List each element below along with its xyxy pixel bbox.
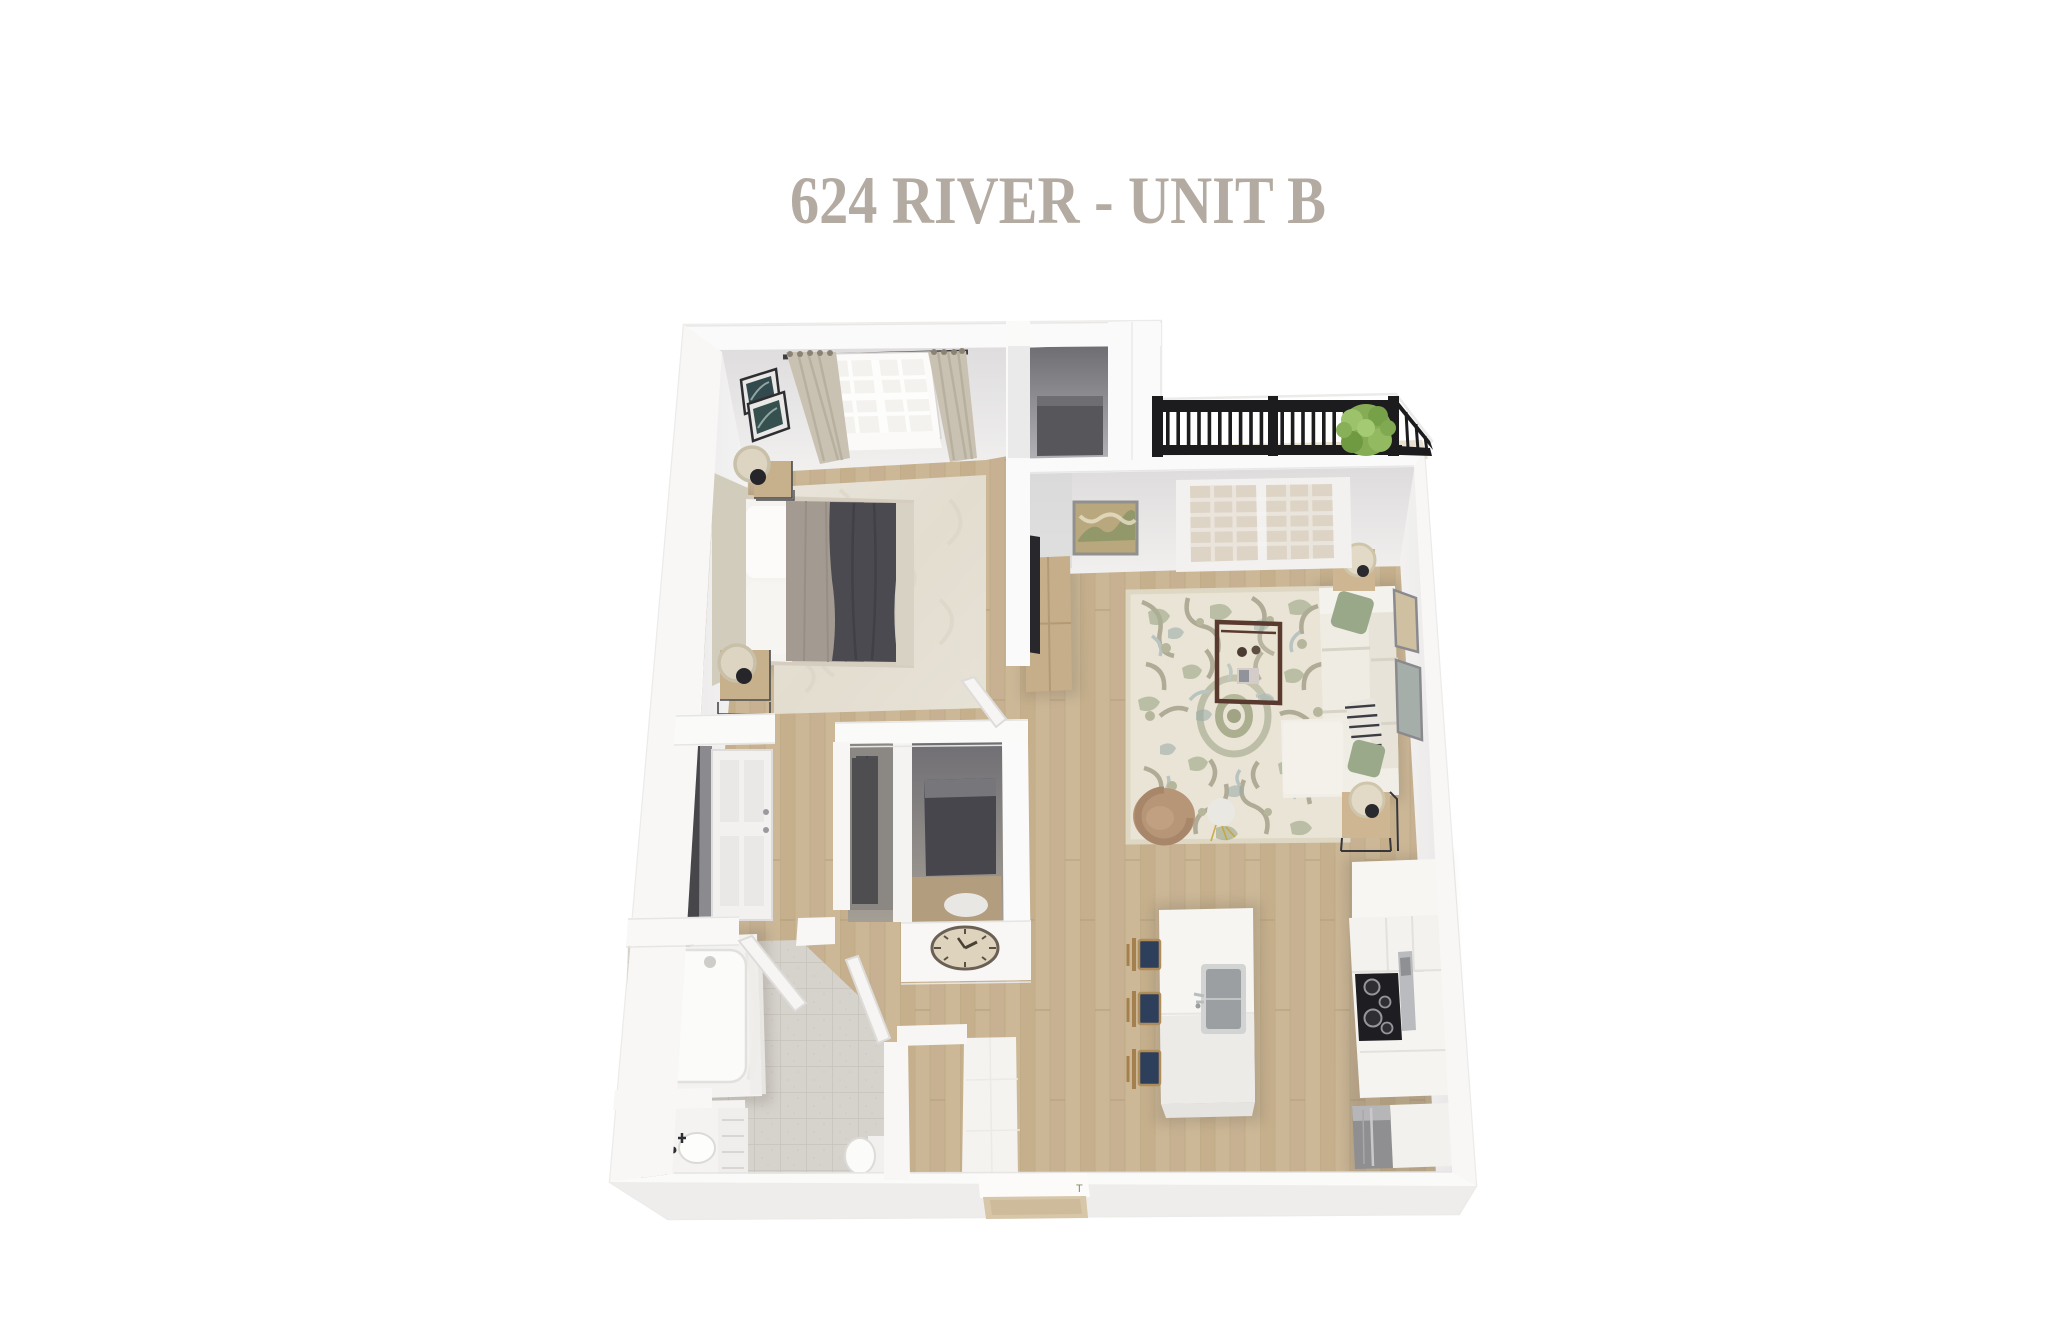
svg-text:T: T bbox=[1076, 1183, 1083, 1195]
svg-text:624 RIVER - UNIT B: 624 RIVER - UNIT B bbox=[790, 162, 1326, 238]
